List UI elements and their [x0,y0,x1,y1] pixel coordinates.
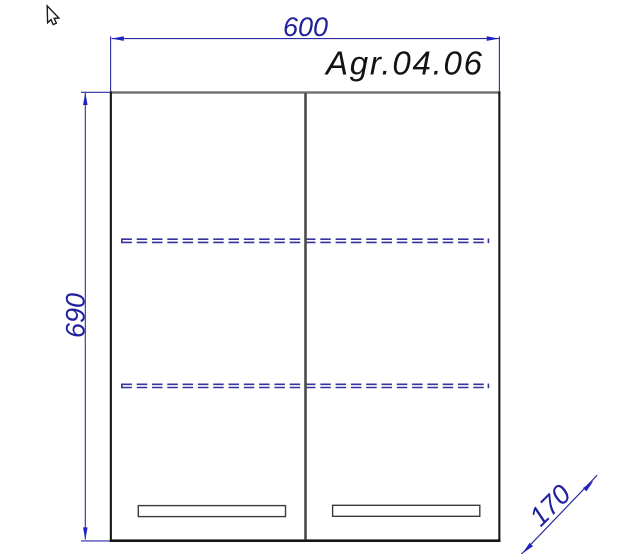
svg-text:170: 170 [524,479,577,532]
svg-text:690: 690 [60,293,90,338]
svg-text:600: 600 [283,12,328,42]
svg-text:Agr.04.06: Agr.04.06 [324,45,483,82]
